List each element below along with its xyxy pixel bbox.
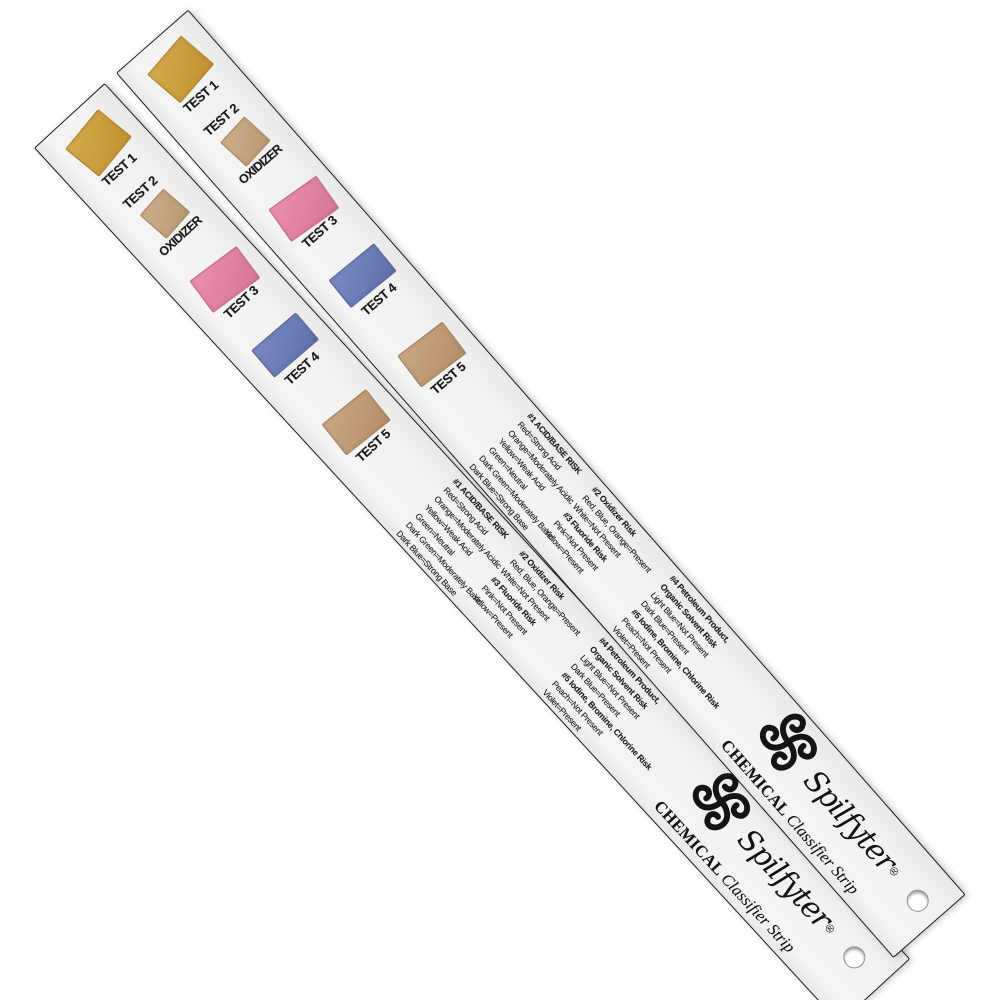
product-photo-background: TEST 1 TEST 2 OXIDIZER TEST 3 TEST 4 TES… [0, 0, 1000, 1000]
chemical-classifier-strip-back: TEST 1 TEST 2 OXIDIZER TEST 3 TEST 4 TES… [34, 83, 910, 1000]
hang-hole [839, 942, 870, 973]
chemical-classifier-strip-front: TEST 1 TEST 2 OXIDIZER TEST 3 TEST 4 TES… [116, 10, 966, 958]
brand-name-text: Spilfyter [796, 763, 903, 878]
hang-hole [902, 885, 933, 916]
